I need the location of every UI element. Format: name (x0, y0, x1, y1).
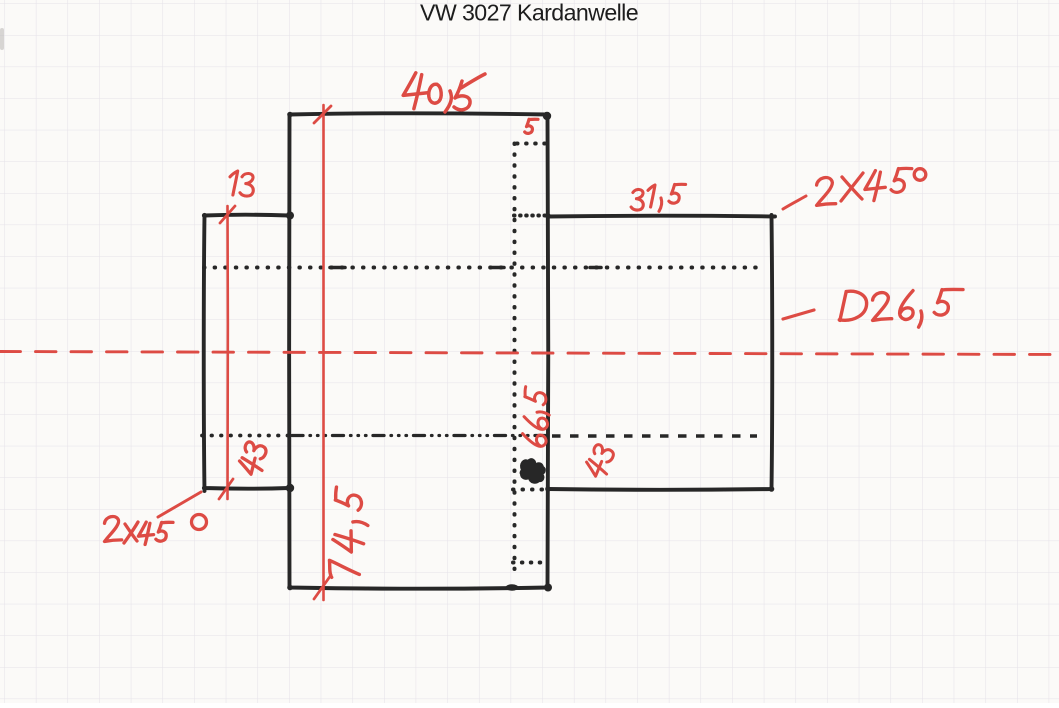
svg-text:VW 3027 Kardanwelle: VW 3027 Kardanwelle (420, 0, 638, 26)
